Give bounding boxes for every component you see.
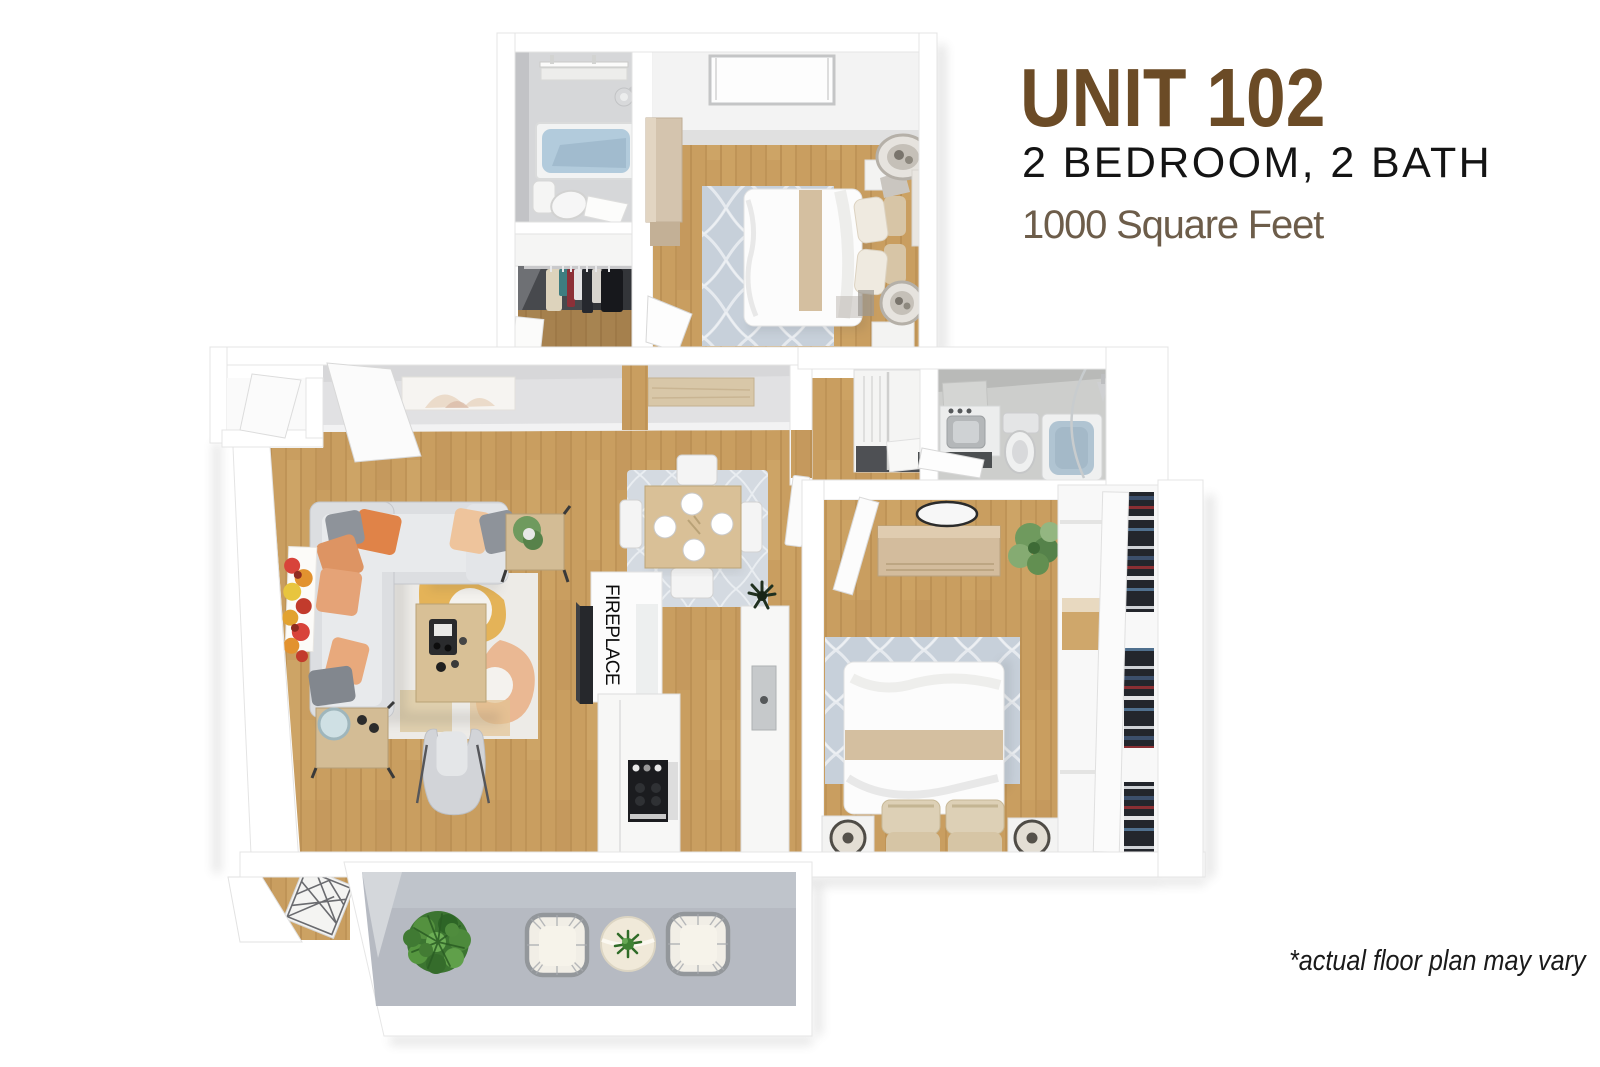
- svg-text:FIREPLACE: FIREPLACE: [601, 584, 622, 685]
